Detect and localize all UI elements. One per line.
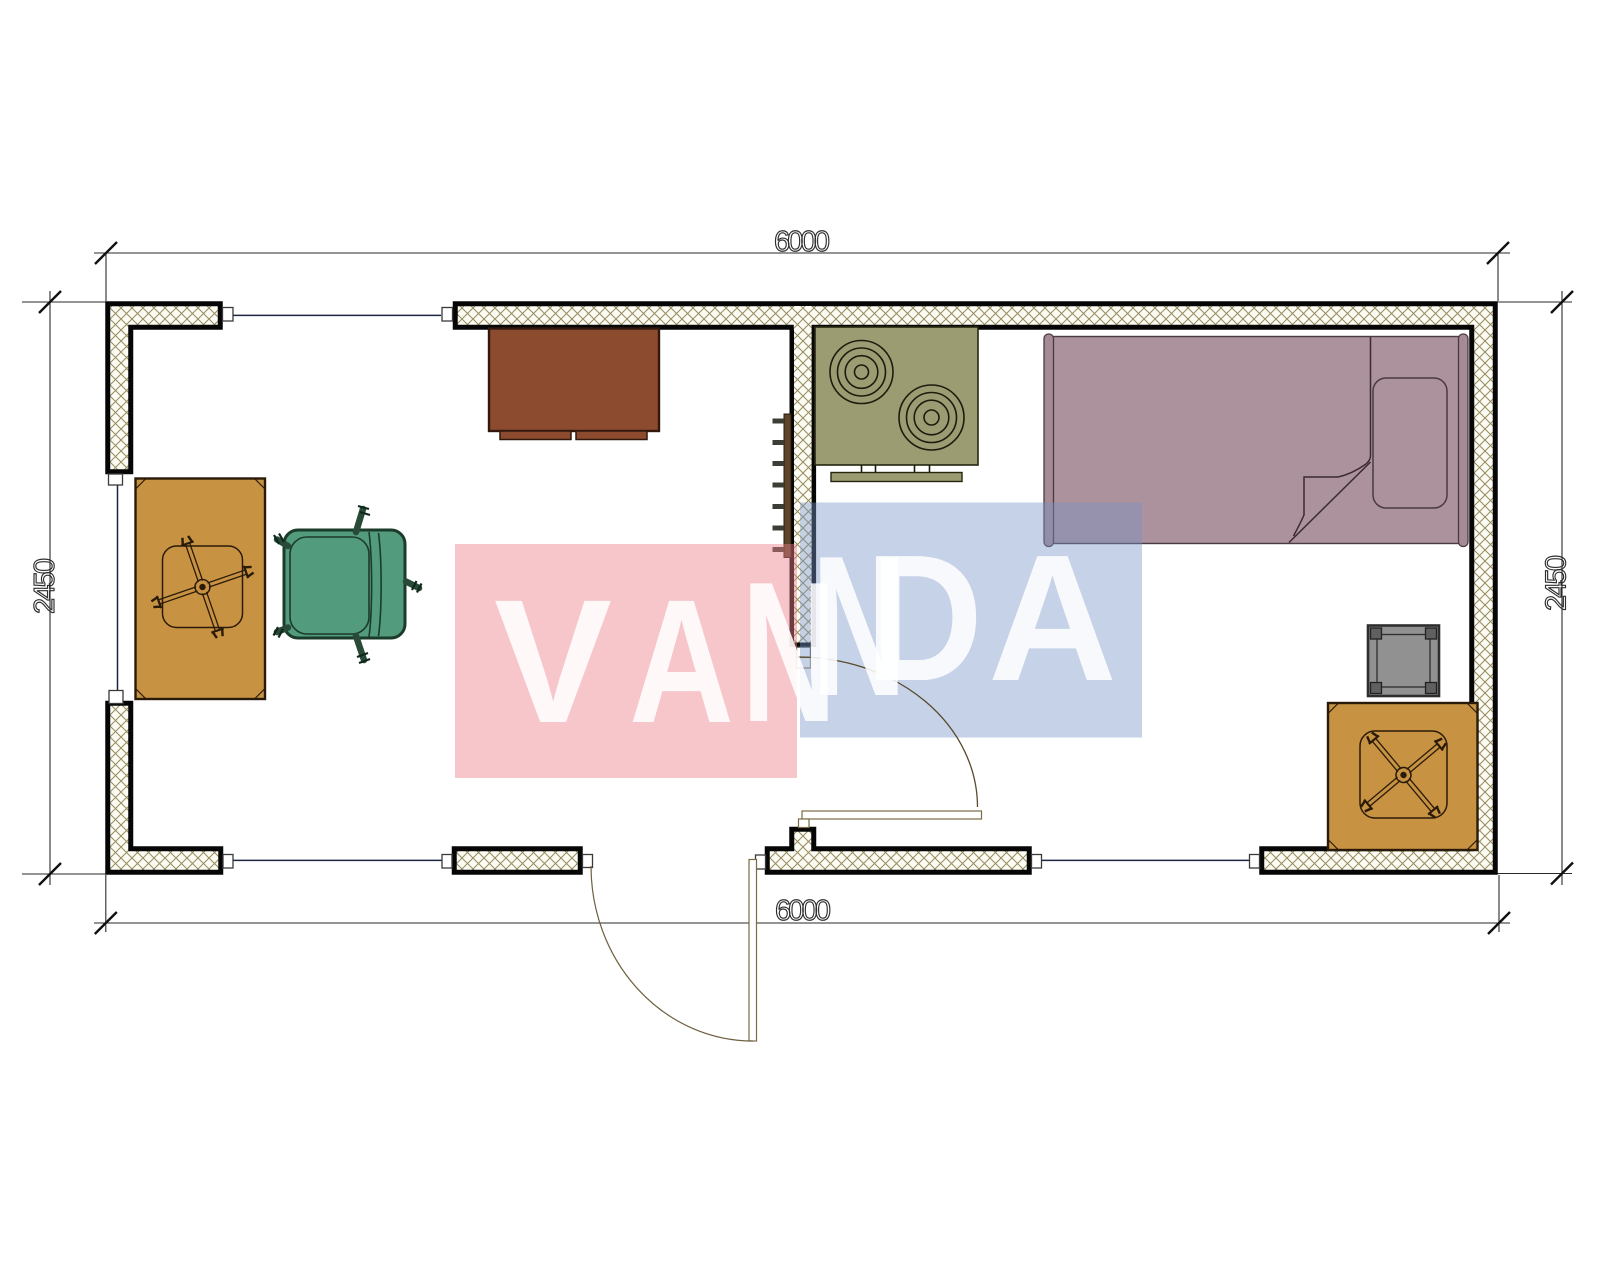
svg-text:2450: 2450 [29, 558, 61, 614]
svg-text:6000: 6000 [775, 895, 831, 927]
svg-text:2450: 2450 [1541, 555, 1573, 611]
svg-text:D: D [865, 518, 983, 719]
svg-text:A: A [629, 564, 734, 760]
svg-text:6000: 6000 [774, 226, 830, 258]
svg-text:A: A [988, 518, 1117, 719]
svg-text:V: V [494, 564, 612, 760]
